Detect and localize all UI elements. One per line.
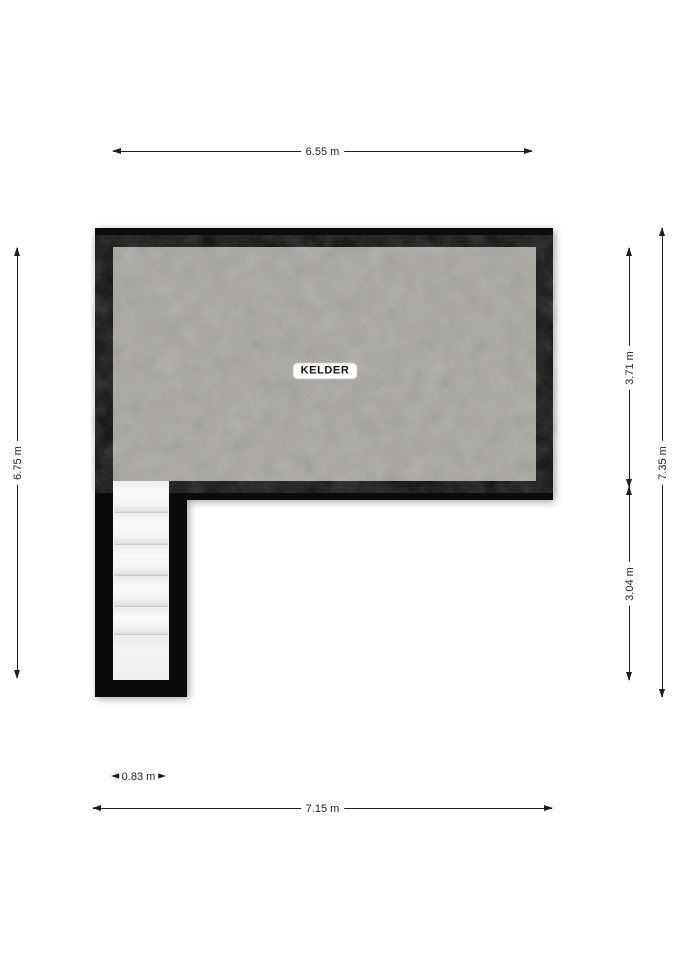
dimension-right-total: 7.35 m [662,228,663,697]
dimension-label: 6.55 m [301,145,345,159]
staircase [113,481,169,680]
stair-tread [113,576,169,607]
floorplan-canvas: KELDER 6.55 m 6.75 m 3.71 m 3.04 m 7.35 … [0,0,679,960]
arrow-right-icon [157,773,166,779]
arrow-left-icon [92,805,101,811]
dimension-left-height: 6.75 m [17,248,18,678]
arrow-up-icon [626,247,632,256]
room-label: KELDER [301,365,350,377]
dimension-label: 7.15 m [301,802,345,816]
arrow-down-icon [659,689,665,698]
dimension-label: 7.35 m [656,441,670,485]
arrow-up-icon [626,486,632,495]
dimension-label: 3.04 m [623,562,637,606]
stair-tread [113,513,169,545]
dimension-label: 0.83 m [119,770,159,784]
arrow-right-icon [544,805,553,811]
dimension-label: 6.75 m [11,441,25,485]
dimension-stairwell-width: 0.83 m [112,776,165,777]
dimension-label: 3.71 m [623,346,637,390]
dimension-top-width: 6.55 m [113,151,532,152]
dimension-right-upper: 3.71 m [629,248,630,487]
stair-tread [113,481,169,513]
room-label-badge: KELDER [293,363,358,380]
dimension-bottom-width: 7.15 m [93,808,552,809]
arrow-down-icon [14,670,20,679]
stair-tread [113,607,169,635]
stair-tread [113,545,169,576]
arrow-up-icon [659,227,665,236]
dimension-right-lower: 3.04 m [629,487,630,680]
arrow-left-icon [112,148,121,154]
arrow-down-icon [626,672,632,681]
arrow-right-icon [524,148,533,154]
stair-tread [113,635,169,680]
arrow-up-icon [14,247,20,256]
